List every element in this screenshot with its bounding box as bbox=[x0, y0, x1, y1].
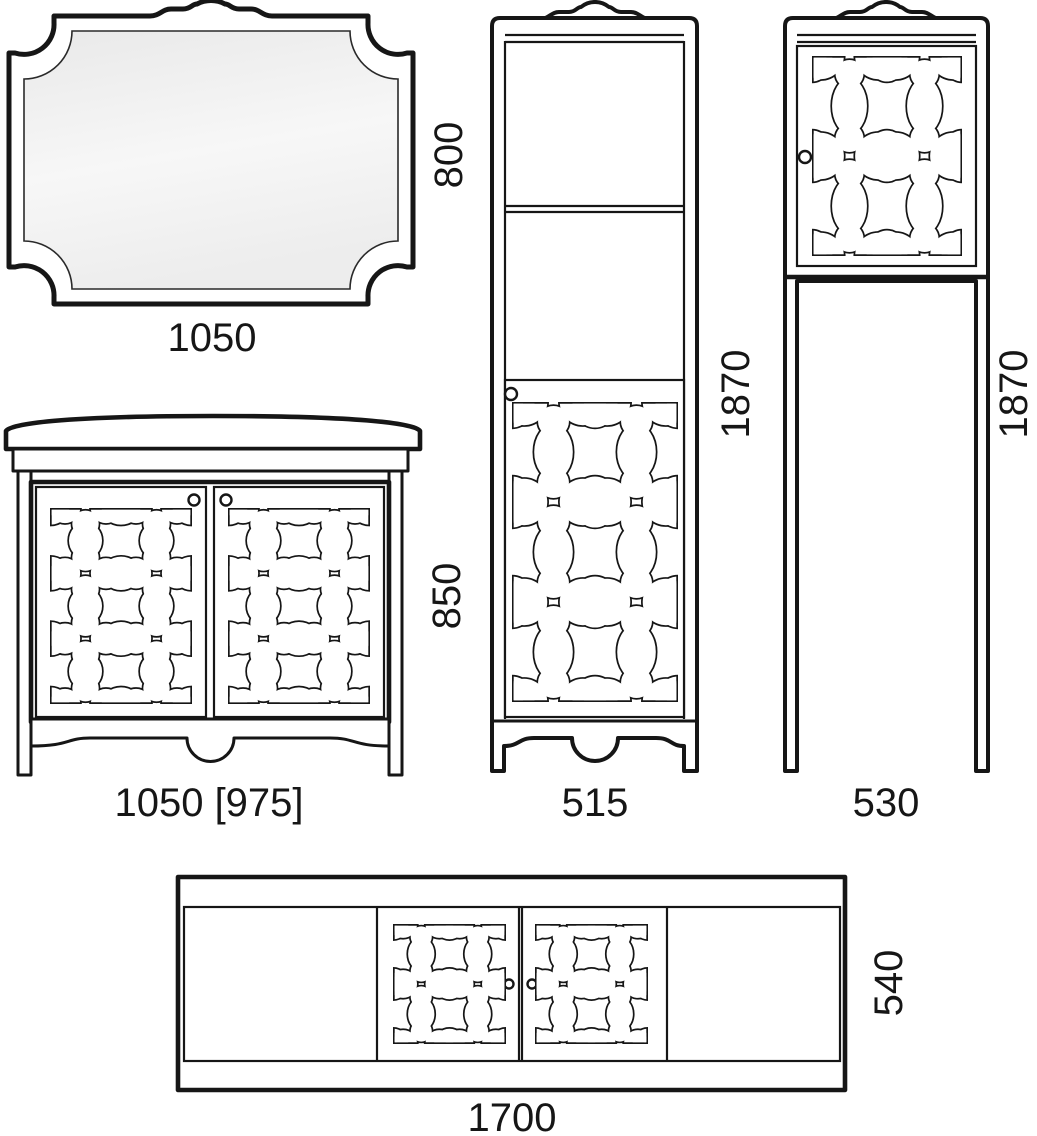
mirror-width-label: 1050 bbox=[92, 318, 332, 358]
open-cabinet-width-label: 530 bbox=[766, 783, 1006, 823]
vanity-countertop bbox=[6, 416, 420, 449]
vanity-knob-right[interactable] bbox=[221, 495, 232, 506]
lattice-panel bbox=[780, 30, 994, 281]
tall-cabinet-drawing bbox=[477, 2, 714, 771]
mirror-drawing bbox=[9, 1, 413, 304]
vanity-knob-left[interactable] bbox=[189, 495, 200, 506]
tall-cabinet-width-label: 515 bbox=[475, 783, 715, 823]
lattice-panel bbox=[369, 909, 530, 1060]
tall-cabinet-knob[interactable] bbox=[505, 388, 517, 400]
bath-panel-width-label: 1700 bbox=[392, 1098, 632, 1136]
furniture-dimension-diagram: 1050 800 1050 [975] 850 515 1870 530 187… bbox=[0, 0, 1037, 1136]
vanity-height-label: 850 bbox=[427, 563, 467, 630]
mirror-height-label: 800 bbox=[429, 122, 469, 189]
vanity-drawing bbox=[6, 416, 420, 775]
open-cabinet-height-label: 1870 bbox=[994, 350, 1034, 439]
bath-panel-height-label: 540 bbox=[869, 950, 909, 1017]
tall-cabinet-height-label: 1870 bbox=[716, 350, 756, 439]
open-cabinet-knob[interactable] bbox=[799, 151, 811, 163]
vanity-apron-scallop bbox=[31, 719, 389, 761]
mirror-glass bbox=[24, 31, 398, 289]
lattice-panel bbox=[511, 909, 672, 1060]
vanity-apron-band bbox=[13, 449, 408, 471]
open-cabinet-drawing bbox=[780, 2, 994, 771]
vanity-width-label: 1050 [975] bbox=[69, 783, 349, 823]
bath-panel-drawing bbox=[178, 877, 845, 1090]
